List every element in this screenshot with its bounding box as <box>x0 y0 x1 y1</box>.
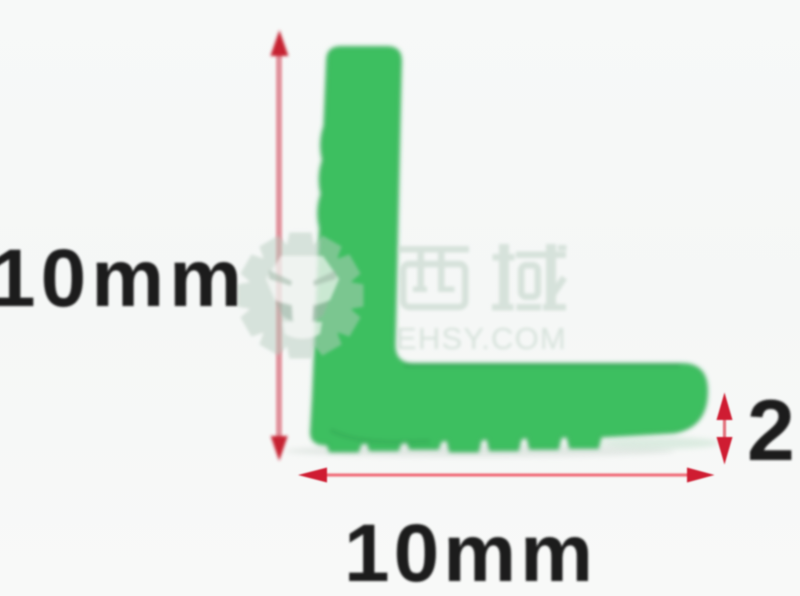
svg-text:2: 2 <box>747 383 795 479</box>
svg-text:10mm: 10mm <box>344 508 597 596</box>
svg-text:10mm: 10mm <box>0 233 247 324</box>
svg-text:EHSY.COM: EHSY.COM <box>396 321 567 356</box>
